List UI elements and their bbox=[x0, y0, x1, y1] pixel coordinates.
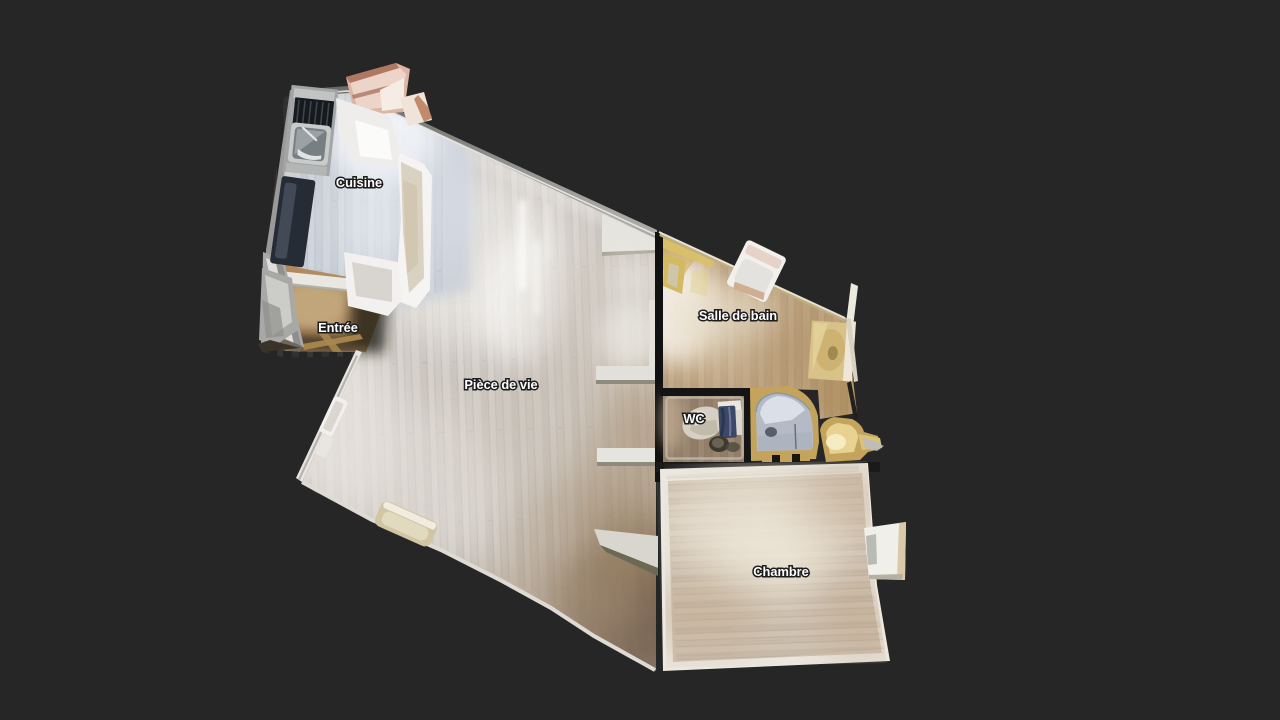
svg-text:Entrée: Entrée bbox=[318, 320, 358, 335]
svg-text:Salle de bain: Salle de bain bbox=[699, 308, 777, 323]
svg-text:Chambre: Chambre bbox=[753, 564, 808, 579]
svg-text:WC: WC bbox=[683, 411, 704, 426]
svg-text:Cuisine: Cuisine bbox=[336, 175, 382, 190]
svg-text:Pièce de vie: Pièce de vie bbox=[464, 377, 537, 392]
